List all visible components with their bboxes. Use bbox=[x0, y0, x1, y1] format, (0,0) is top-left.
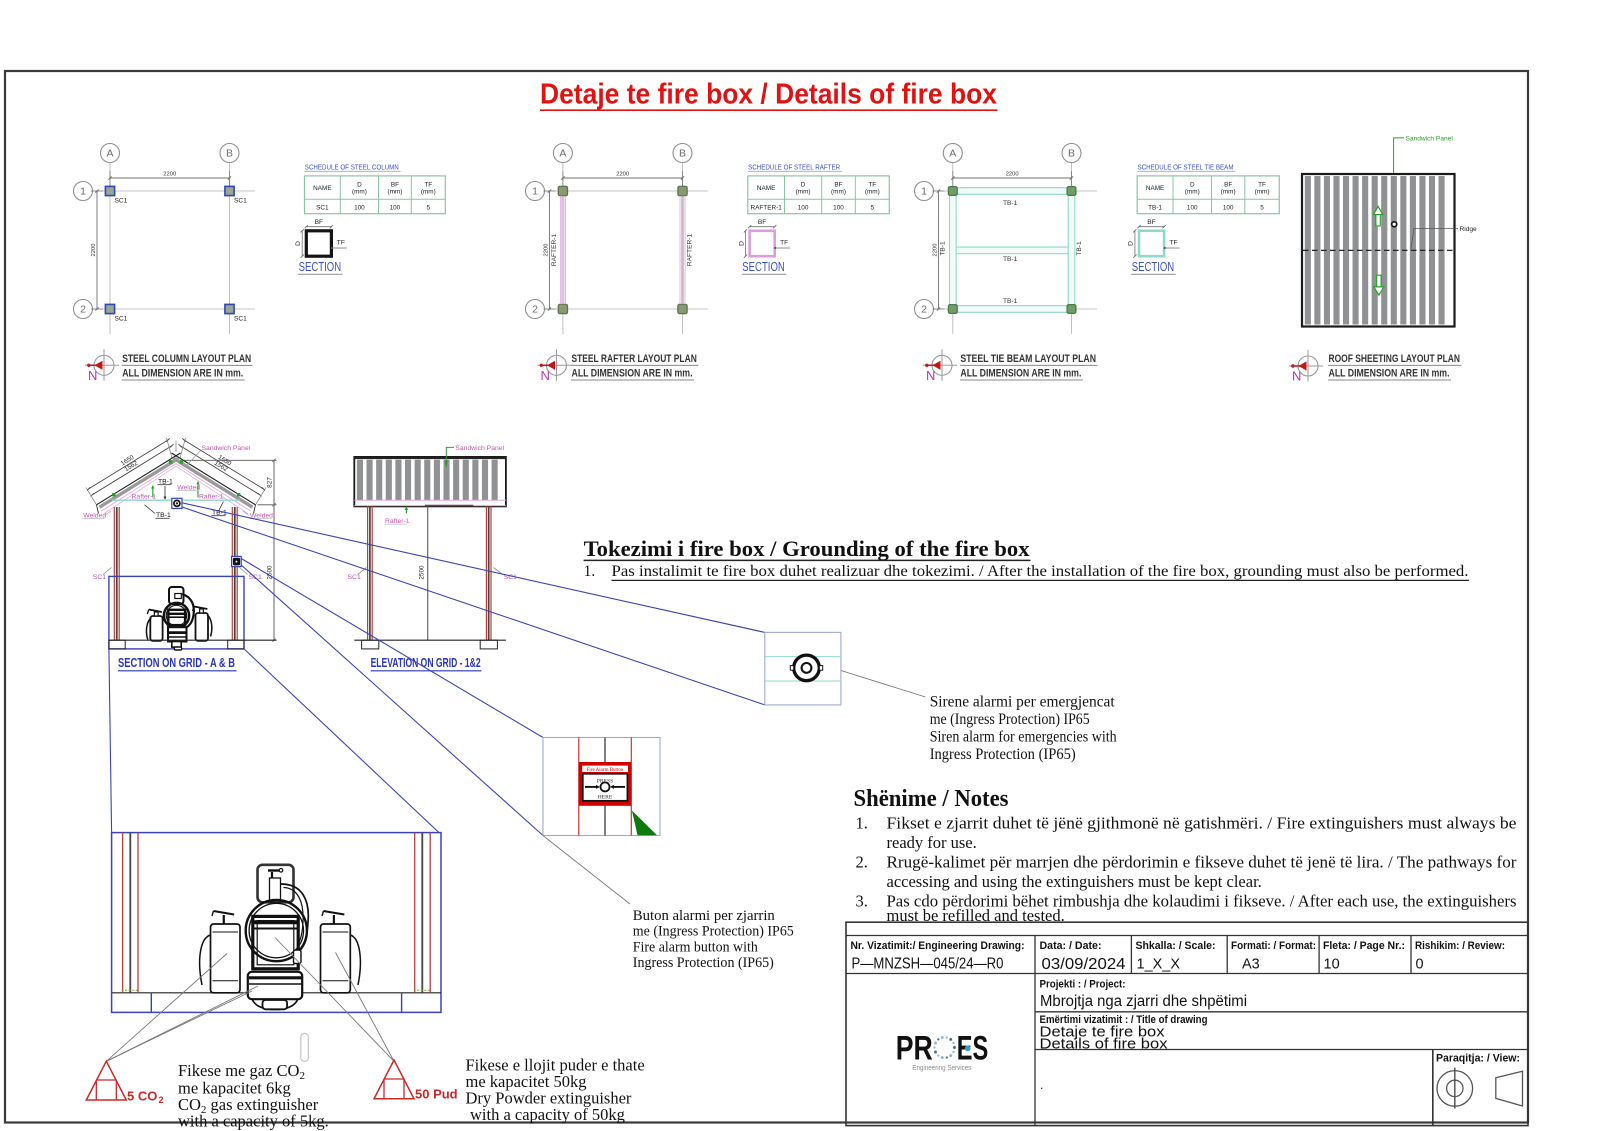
svg-text:Fleta: / Page Nr.:: Fleta: / Page Nr.: bbox=[1323, 940, 1405, 952]
svg-text:TF: TF bbox=[1258, 181, 1266, 188]
svg-text:100: 100 bbox=[390, 204, 401, 211]
svg-text:A3: A3 bbox=[1242, 957, 1260, 973]
svg-text:Sandwich Panel: Sandwich Panel bbox=[455, 445, 504, 452]
svg-text:2: 2 bbox=[921, 304, 927, 316]
svg-text:Sandwich Panel: Sandwich Panel bbox=[202, 445, 251, 452]
svg-text:2200: 2200 bbox=[91, 244, 97, 257]
svg-text:Fire alarm button with: Fire alarm button with bbox=[633, 939, 759, 955]
svg-text:N: N bbox=[88, 368, 97, 383]
svg-text:TB-1: TB-1 bbox=[1003, 200, 1018, 207]
svg-text:A: A bbox=[949, 148, 956, 160]
svg-text:Paraqitja: / View:: Paraqitja: / View: bbox=[1436, 1053, 1520, 1065]
svg-text:Siren alarm for emergencies wi: Siren alarm for emergencies with bbox=[930, 729, 1117, 746]
svg-text:Details of fire box: Details of fire box bbox=[1040, 1037, 1169, 1053]
svg-text:RAFTER-1: RAFTER-1 bbox=[687, 234, 694, 267]
svg-text:1.: 1. bbox=[856, 814, 868, 833]
svg-text:Sirene alarmi per emergjencat: Sirene alarmi per emergjencat bbox=[930, 694, 1116, 711]
svg-text:Rrugë-kalimet për marrjen dhe: Rrugë-kalimet për marrjen dhe përdorimin… bbox=[887, 853, 1518, 872]
svg-text:03/09/2024: 03/09/2024 bbox=[1042, 956, 1126, 973]
svg-text:SECTION: SECTION bbox=[742, 260, 785, 274]
svg-text:TB-1: TB-1 bbox=[940, 241, 947, 256]
svg-text:0: 0 bbox=[1416, 957, 1424, 973]
svg-text:5: 5 bbox=[1260, 204, 1264, 211]
svg-text:STEEL RAFTER LAYOUT PLAN: STEEL RAFTER LAYOUT PLAN bbox=[572, 353, 697, 365]
svg-text:(mm): (mm) bbox=[1255, 189, 1270, 196]
svg-text:TF: TF bbox=[780, 240, 788, 247]
svg-text:5: 5 bbox=[871, 204, 875, 211]
svg-text:100: 100 bbox=[354, 204, 365, 211]
svg-text:B: B bbox=[1068, 148, 1075, 160]
svg-text:Formati: / Format:: Formati: / Format: bbox=[1231, 940, 1316, 952]
svg-text:Nr. Vizatimit:/ Engineering Dr: Nr. Vizatimit:/ Engineering Drawing: bbox=[851, 940, 1025, 952]
svg-text:BF: BF bbox=[834, 181, 842, 188]
svg-text:SCHEDULE OF STEEL TIE BEAM: SCHEDULE OF STEEL TIE BEAM bbox=[1138, 162, 1234, 171]
svg-text:(mm): (mm) bbox=[796, 189, 811, 196]
svg-text:SC1: SC1 bbox=[115, 198, 128, 205]
svg-text:D: D bbox=[295, 241, 302, 246]
svg-text:Shënime / Notes: Shënime / Notes bbox=[854, 786, 1009, 812]
svg-text:(mm): (mm) bbox=[1185, 189, 1200, 196]
svg-text:TB-1: TB-1 bbox=[1003, 256, 1018, 263]
svg-text:N: N bbox=[541, 368, 550, 383]
svg-text:2: 2 bbox=[159, 1095, 164, 1105]
svg-text:NAME: NAME bbox=[313, 185, 331, 192]
svg-text:B: B bbox=[226, 148, 233, 160]
svg-text:N: N bbox=[926, 368, 935, 383]
svg-text:Sandwich Panel: Sandwich Panel bbox=[1406, 135, 1454, 142]
svg-text:BF: BF bbox=[315, 219, 323, 226]
svg-text:TF: TF bbox=[337, 240, 345, 247]
svg-text:2200: 2200 bbox=[1006, 172, 1019, 178]
svg-text:D: D bbox=[738, 241, 745, 246]
svg-text:Fikset e zjarrit duhet të jënë: Fikset e zjarrit duhet të jënë gjithmonë… bbox=[887, 814, 1517, 833]
svg-text:D: D bbox=[801, 181, 806, 188]
svg-text:Fire Alarm Button: Fire Alarm Button bbox=[587, 768, 624, 773]
svg-text:.: . bbox=[1040, 1078, 1043, 1092]
svg-text:Shkalla: / Scale:: Shkalla: / Scale: bbox=[1136, 940, 1216, 952]
svg-text:1.: 1. bbox=[584, 563, 596, 580]
svg-text:2200: 2200 bbox=[543, 244, 549, 257]
svg-text:5: 5 bbox=[427, 204, 431, 211]
svg-text:SECTION: SECTION bbox=[1132, 260, 1175, 274]
svg-text:ALL DIMENSION ARE IN mm.: ALL DIMENSION ARE IN mm. bbox=[960, 367, 1081, 379]
svg-text:D: D bbox=[1128, 241, 1135, 246]
svg-text:me (Ingress Protection) IP65: me (Ingress Protection) IP65 bbox=[930, 711, 1090, 728]
svg-text:PR: PR bbox=[896, 1030, 933, 1068]
svg-text:3.: 3. bbox=[856, 891, 868, 910]
svg-text:Detaje te fire box / Details o: Detaje te fire box / Details of fire box bbox=[540, 79, 997, 111]
svg-text:SC1: SC1 bbox=[115, 316, 128, 323]
svg-text:10: 10 bbox=[1324, 957, 1340, 973]
svg-text:(mm): (mm) bbox=[1221, 189, 1236, 196]
svg-text:with a capacity of 5kg.: with a capacity of 5kg. bbox=[178, 1111, 329, 1130]
svg-text:SC1: SC1 bbox=[234, 198, 247, 205]
svg-text:100: 100 bbox=[798, 204, 809, 211]
svg-text:NAME: NAME bbox=[757, 185, 775, 192]
svg-text:Mbrojtja nga zjarri dhe sh: Mbrojtja nga zjarri dhe shpëtimi bbox=[1040, 993, 1247, 1010]
svg-text:Projekti : / Project:: Projekti : / Project: bbox=[1040, 979, 1126, 991]
svg-text:5 CO: 5 CO bbox=[127, 1089, 157, 1104]
svg-text:SCHEDULE OF STEEL COLUMN: SCHEDULE OF STEEL COLUMN bbox=[305, 162, 399, 171]
svg-text:Ingress Protection (IP65): Ingress Protection (IP65) bbox=[930, 746, 1076, 763]
svg-text:SC1: SC1 bbox=[348, 574, 361, 581]
svg-text:2500: 2500 bbox=[418, 565, 425, 580]
svg-text:TF: TF bbox=[424, 181, 432, 188]
svg-text:STEEL COLUMN LAYOUT PLAN: STEEL COLUMN LAYOUT PLAN bbox=[122, 353, 251, 365]
svg-text:Engineering Services: Engineering Services bbox=[912, 1063, 971, 1072]
svg-text:2: 2 bbox=[80, 304, 86, 316]
svg-text:827: 827 bbox=[266, 477, 273, 488]
svg-text:me (Ingress Protection) IP65: me (Ingress Protection) IP65 bbox=[633, 924, 794, 940]
svg-text:P—MNZSH—045/24—R0: P—MNZSH—045/24—R0 bbox=[852, 956, 1004, 973]
svg-text:(mm): (mm) bbox=[865, 189, 880, 196]
svg-text:(mm): (mm) bbox=[387, 189, 402, 196]
svg-text:SECTION ON GRID - A & B: SECTION ON GRID - A & B bbox=[118, 656, 235, 670]
svg-text:BF: BF bbox=[1224, 181, 1232, 188]
svg-text:(mm): (mm) bbox=[421, 189, 436, 196]
svg-text:ALL DIMENSION ARE IN mm.: ALL DIMENSION ARE IN mm. bbox=[572, 367, 693, 379]
svg-text:Buton alarmi per zjarrin: Buton alarmi per zjarrin bbox=[633, 908, 776, 924]
svg-text:N: N bbox=[1292, 369, 1301, 384]
svg-text:BF: BF bbox=[1147, 219, 1155, 226]
svg-text:BF: BF bbox=[758, 219, 766, 226]
svg-text:2.: 2. bbox=[856, 853, 868, 872]
svg-text:SC1: SC1 bbox=[234, 316, 247, 323]
svg-text:ALL DIMENSION ARE IN mm.: ALL DIMENSION ARE IN mm. bbox=[1329, 367, 1450, 379]
svg-text:ALL DIMENSION ARE IN mm.: ALL DIMENSION ARE IN mm. bbox=[122, 367, 243, 379]
svg-text:Ingress Protection (IP65): Ingress Protection (IP65) bbox=[633, 955, 774, 971]
svg-text:RAFTER-1: RAFTER-1 bbox=[551, 234, 558, 267]
svg-text:2: 2 bbox=[532, 304, 538, 316]
svg-text:TB-1: TB-1 bbox=[1003, 298, 1018, 305]
svg-text:TB-1: TB-1 bbox=[1076, 241, 1083, 256]
svg-text:A: A bbox=[106, 148, 113, 160]
svg-text:B: B bbox=[679, 148, 686, 160]
svg-text:ready for use.: ready for use. bbox=[887, 833, 977, 852]
svg-text:with a capacity of 50kg: with a capacity of 50kg bbox=[470, 1105, 625, 1124]
svg-text:(mm): (mm) bbox=[352, 189, 367, 196]
svg-text:(mm): (mm) bbox=[831, 189, 846, 196]
svg-text:D: D bbox=[357, 181, 362, 188]
svg-text:BF: BF bbox=[391, 181, 399, 188]
svg-text:TF: TF bbox=[868, 181, 876, 188]
svg-text:Data: / Date:: Data: / Date: bbox=[1040, 940, 1102, 952]
svg-text:SC1: SC1 bbox=[316, 204, 329, 211]
svg-text:TF: TF bbox=[1170, 240, 1178, 247]
svg-text:2200: 2200 bbox=[932, 244, 938, 257]
svg-text:D: D bbox=[1190, 181, 1195, 188]
svg-text:Ridge: Ridge bbox=[1460, 226, 1478, 233]
svg-text:A: A bbox=[559, 148, 566, 160]
svg-text:ROOF SHEETING LAYOUT PLAN: ROOF SHEETING LAYOUT PLAN bbox=[1329, 353, 1461, 365]
svg-text:100: 100 bbox=[1223, 204, 1234, 211]
svg-text:SECTION: SECTION bbox=[299, 260, 342, 274]
svg-text:100: 100 bbox=[833, 204, 844, 211]
svg-text:HERE: HERE bbox=[598, 794, 613, 800]
svg-text:Pas instalimit te fire box duh: Pas instalimit te fire box duhet realizu… bbox=[612, 563, 1469, 580]
svg-text:100: 100 bbox=[1187, 204, 1198, 211]
svg-text:50 Pud: 50 Pud bbox=[415, 1087, 458, 1102]
svg-text:STEEL TIE BEAM LAYOUT PLAN: STEEL TIE BEAM LAYOUT PLAN bbox=[960, 353, 1096, 365]
svg-text:1_X_X: 1_X_X bbox=[1137, 957, 1181, 973]
svg-text:1: 1 bbox=[80, 186, 86, 198]
svg-text:Rishikim: / Review:: Rishikim: / Review: bbox=[1415, 940, 1505, 952]
svg-text:2200: 2200 bbox=[616, 172, 629, 178]
svg-text:1: 1 bbox=[921, 186, 927, 198]
svg-text:1: 1 bbox=[532, 186, 538, 198]
svg-text:RAFTER-1: RAFTER-1 bbox=[751, 204, 783, 211]
svg-text:SCHEDULE OF STEEL RAFTER: SCHEDULE OF STEEL RAFTER bbox=[748, 162, 840, 171]
svg-text:Tokezimi i fire box / Groundin: Tokezimi i fire box / Grounding of the f… bbox=[584, 536, 1031, 561]
svg-text:SC1: SC1 bbox=[93, 574, 106, 581]
svg-text:TB-1: TB-1 bbox=[1148, 204, 1162, 211]
svg-text:ES: ES bbox=[957, 1030, 989, 1068]
svg-text:NAME: NAME bbox=[1146, 185, 1164, 192]
svg-text:2200: 2200 bbox=[163, 172, 176, 178]
svg-text:accessing and using the exting: accessing and using the extinguishers mu… bbox=[887, 872, 1262, 891]
